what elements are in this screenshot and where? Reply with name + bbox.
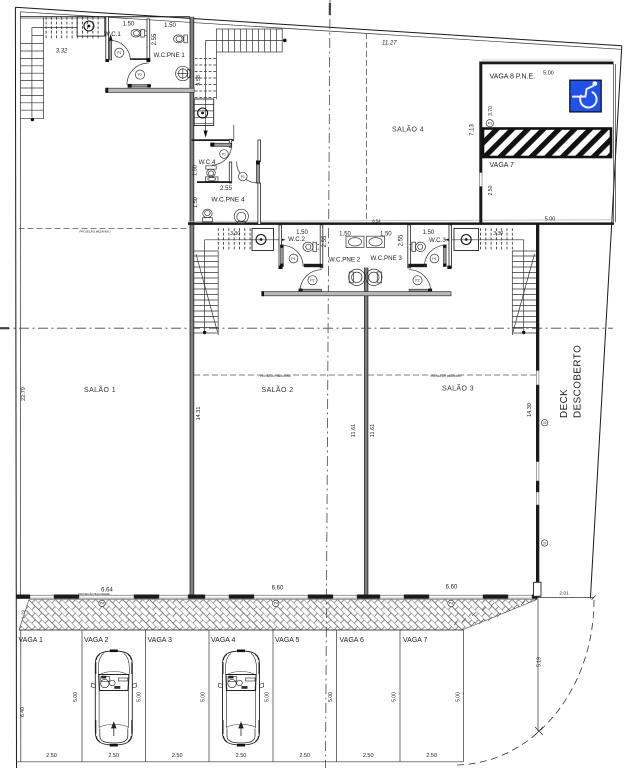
svg-text:2.50: 2.50: [299, 753, 310, 759]
svg-text:3.30: 3.30: [493, 231, 503, 237]
svg-text:1.50: 1.50: [193, 165, 199, 176]
svg-text:5.00: 5.00: [455, 692, 461, 702]
svg-text:2.01: 2.01: [559, 591, 569, 597]
svg-text:5.00: 5.00: [137, 692, 143, 702]
svg-text:14.31: 14.31: [196, 407, 202, 421]
svg-text:7.13: 7.13: [470, 124, 476, 136]
svg-text:2.50: 2.50: [46, 753, 57, 759]
svg-text:2.50: 2.50: [363, 753, 374, 759]
svg-text:W.C.PNE 2: W.C.PNE 2: [329, 257, 361, 264]
svg-text:PROJEÇÃO MEZANINO: PROJEÇÃO MEZANINO: [431, 373, 463, 378]
svg-text:P1: P1: [432, 257, 436, 261]
svg-text:2.50: 2.50: [488, 185, 494, 195]
svg-text:W.C.2: W.C.2: [288, 236, 305, 243]
svg-text:8.54: 8.54: [372, 219, 381, 224]
svg-text:PROJEÇÃO MEZANINO: PROJEÇÃO MEZANINO: [260, 373, 292, 378]
svg-text:14.30: 14.30: [527, 403, 533, 417]
svg-text:5.00: 5.00: [392, 692, 398, 702]
svg-text:5.19: 5.19: [537, 657, 543, 667]
svg-text:P3: P3: [488, 122, 492, 126]
svg-text:VAGA 8 P.N.E.: VAGA 8 P.N.E.: [490, 74, 536, 81]
svg-text:6.40: 6.40: [20, 707, 26, 717]
svg-text:2.55: 2.55: [322, 235, 328, 247]
svg-text:W.C.1: W.C.1: [104, 31, 121, 38]
svg-text:2.55: 2.55: [399, 234, 405, 246]
svg-text:11.61: 11.61: [351, 424, 357, 437]
svg-text:2.50: 2.50: [172, 753, 183, 759]
svg-text:VAGA 6: VAGA 6: [340, 637, 364, 644]
svg-text:P2: P2: [415, 279, 419, 283]
svg-text:1.50: 1.50: [339, 232, 351, 238]
svg-text:VAGA 5: VAGA 5: [275, 637, 299, 644]
svg-text:P1: P1: [117, 51, 121, 55]
svg-text:J2: J2: [543, 541, 547, 545]
svg-text:W.C.4: W.C.4: [199, 159, 216, 166]
svg-text:1.50: 1.50: [164, 23, 176, 29]
svg-text:6.60: 6.60: [446, 585, 458, 591]
svg-text:5.00: 5.00: [545, 217, 556, 223]
svg-text:P4: P4: [100, 602, 104, 606]
svg-text:P1: P1: [222, 152, 226, 156]
svg-text:SALÃO 1: SALÃO 1: [84, 385, 116, 394]
svg-text:VAGA 2: VAGA 2: [84, 637, 108, 644]
svg-text:P4: P4: [274, 602, 278, 606]
svg-text:5.00: 5.00: [328, 692, 334, 702]
svg-text:PROJEÇÃO BALDRAME: PROJEÇÃO BALDRAME: [78, 591, 110, 596]
svg-text:22.79: 22.79: [21, 387, 27, 401]
svg-text:2.50: 2.50: [426, 753, 437, 759]
svg-text:DECK: DECK: [559, 389, 570, 418]
svg-text:1.50: 1.50: [380, 232, 392, 238]
svg-text:2.50: 2.50: [236, 753, 247, 759]
svg-text:SALÃO 4: SALÃO 4: [392, 125, 424, 134]
svg-text:1.19: 1.19: [21, 610, 26, 619]
svg-text:5.00: 5.00: [543, 71, 554, 77]
svg-text:W.C.PNE 3: W.C.PNE 3: [371, 255, 403, 262]
svg-text:VAGA 4: VAGA 4: [211, 637, 235, 644]
svg-text:3.32: 3.32: [56, 49, 68, 55]
svg-text:W.C.PNE 1: W.C.PNE 1: [154, 52, 186, 59]
svg-text:1.50: 1.50: [423, 230, 435, 236]
svg-text:2.50: 2.50: [108, 753, 119, 759]
svg-text:VAGA 1: VAGA 1: [19, 637, 43, 644]
svg-text:9.58: 9.58: [196, 74, 202, 86]
svg-text:W.C.PNE 4: W.C.PNE 4: [211, 197, 245, 204]
svg-text:5.00: 5.00: [265, 692, 271, 702]
svg-text:PROJEÇÃO MEZANINO: PROJEÇÃO MEZANINO: [80, 229, 112, 234]
svg-text:P2: P2: [310, 279, 314, 283]
svg-text:VAGA 7: VAGA 7: [490, 162, 514, 169]
svg-text:P1: P1: [291, 257, 295, 261]
svg-text:DESCOBERTO: DESCOBERTO: [573, 345, 584, 418]
svg-text:3.70: 3.70: [488, 106, 494, 116]
svg-text:1.50: 1.50: [123, 22, 135, 28]
svg-text:SALÃO 2: SALÃO 2: [262, 385, 294, 394]
svg-text:11.61: 11.61: [370, 424, 376, 437]
svg-text:2.55: 2.55: [220, 185, 233, 192]
svg-text:6.60: 6.60: [272, 586, 284, 592]
svg-text:J2: J2: [543, 421, 547, 425]
svg-text:W.C.3: W.C.3: [429, 237, 446, 244]
svg-text:P4: P4: [449, 602, 453, 606]
svg-text:VAGA 7: VAGA 7: [403, 637, 427, 644]
svg-text:1.50: 1.50: [193, 197, 199, 208]
svg-text:P1: P1: [241, 175, 245, 179]
svg-text:5.00: 5.00: [201, 692, 207, 702]
svg-text:SALÃO 3: SALÃO 3: [442, 384, 474, 393]
svg-text:VAGA 3: VAGA 3: [148, 637, 172, 644]
svg-text:5.00: 5.00: [73, 692, 79, 702]
svg-text:P2: P2: [138, 73, 142, 77]
svg-text:2.55: 2.55: [152, 33, 158, 45]
svg-text:3.30: 3.30: [230, 231, 240, 237]
svg-text:11.27: 11.27: [382, 41, 397, 47]
